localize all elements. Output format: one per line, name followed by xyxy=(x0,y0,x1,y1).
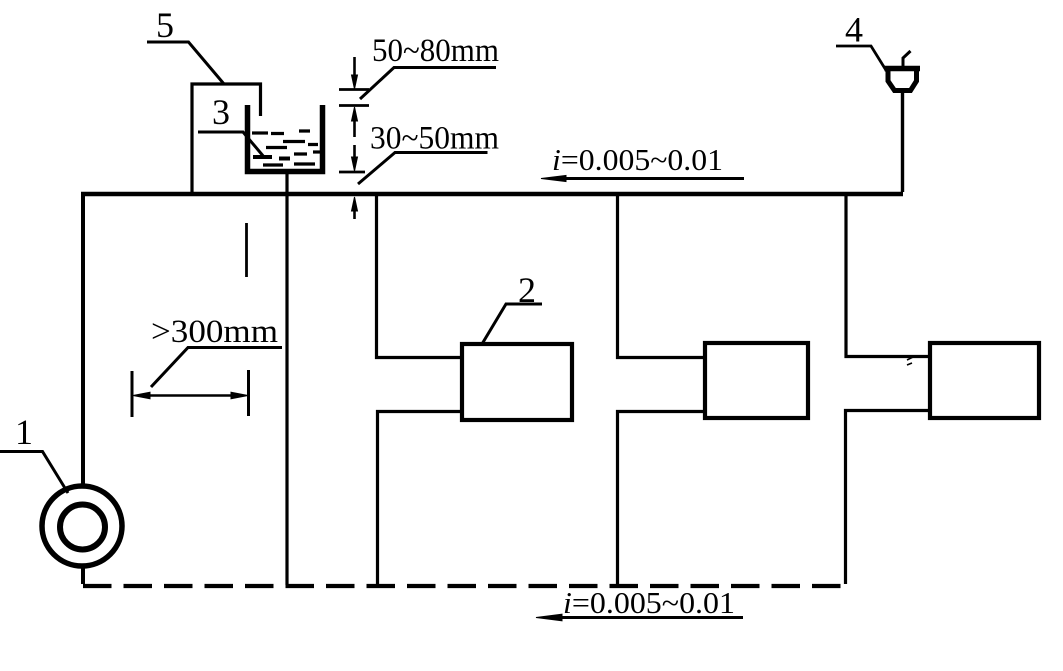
svg-text:50~80mm: 50~80mm xyxy=(372,33,499,69)
svg-text:>300mm: >300mm xyxy=(151,314,278,350)
svg-text:2: 2 xyxy=(518,270,536,310)
svg-text:30~50mm: 30~50mm xyxy=(370,121,499,157)
svg-text:5: 5 xyxy=(156,5,174,45)
svg-text:4: 4 xyxy=(845,10,863,50)
svg-text:1: 1 xyxy=(15,412,33,452)
svg-text:i=0.005~0.01: i=0.005~0.01 xyxy=(563,585,735,620)
svg-text:i=0.005~0.01: i=0.005~0.01 xyxy=(552,142,723,177)
svg-text:3: 3 xyxy=(212,92,230,132)
